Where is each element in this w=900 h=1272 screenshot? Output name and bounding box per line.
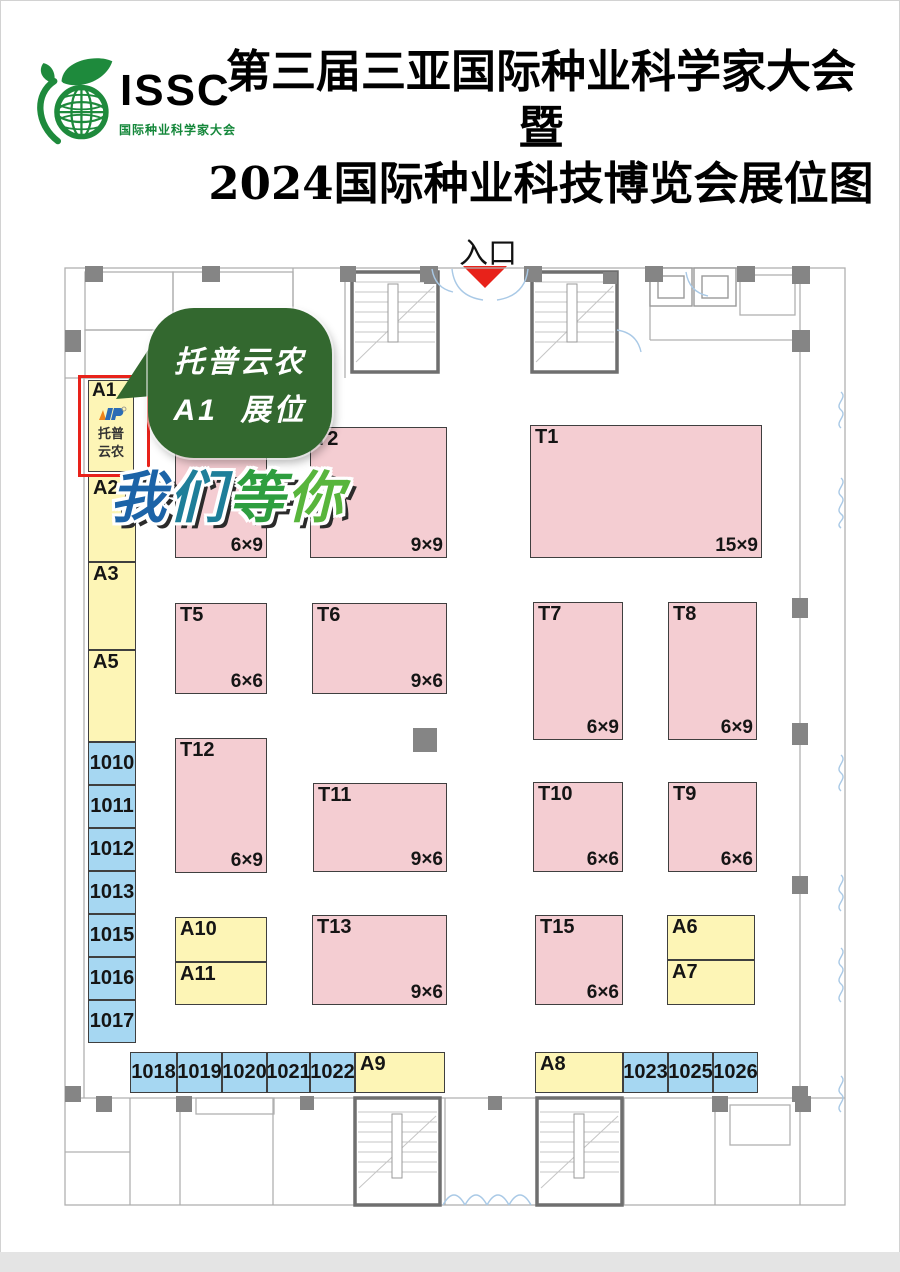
booth-T15: T156×6: [535, 915, 623, 1005]
booth-T13: T139×6: [312, 915, 447, 1005]
booth-T12: T126×9: [175, 738, 267, 873]
booth-A9: A9: [355, 1052, 445, 1093]
booth-id: T1: [535, 425, 558, 450]
booth-id: 1013: [90, 881, 135, 904]
booth-id: 1018: [131, 1061, 176, 1084]
booth-1013: 1013: [88, 871, 136, 914]
booth-1016: 1016: [88, 957, 136, 1000]
booth-size: 6×6: [721, 849, 753, 871]
booth-1015: 1015: [88, 914, 136, 957]
booth-size: 6×9: [231, 535, 263, 557]
welcome-banner: 我们等你: [110, 466, 346, 530]
booth-T6: T69×6: [312, 603, 447, 694]
booth-1023: 1023: [623, 1052, 668, 1093]
booth-A11: A11: [175, 962, 267, 1005]
booth-1022: 1022: [310, 1052, 355, 1093]
title-line2: 2024国际种业科技博览会展位图: [205, 156, 877, 212]
booth-id: T11: [318, 783, 351, 808]
banner-char: 们: [169, 466, 225, 530]
booth-id: T7: [538, 602, 561, 627]
booth-id: 1019: [177, 1061, 222, 1084]
booth-id: 1023: [623, 1061, 668, 1084]
booth-T11: T119×6: [313, 783, 447, 872]
booth-id: 1025: [668, 1061, 713, 1084]
booth-1017: 1017: [88, 1000, 136, 1043]
booth-id: 1016: [90, 967, 135, 990]
booth-T10: T106×6: [533, 782, 623, 872]
booth-id: 1022: [310, 1061, 355, 1084]
banner-char: 你: [287, 466, 343, 530]
booth-id: T9: [673, 782, 696, 807]
booth-size: 9×9: [411, 535, 443, 557]
booth-T9: T96×6: [668, 782, 757, 872]
booth-A8: A8: [535, 1052, 623, 1093]
booth-size: 6×6: [587, 982, 619, 1004]
booth-size: 15×9: [715, 535, 758, 557]
banner-char: 我: [110, 466, 166, 530]
booth-id: T6: [317, 603, 340, 628]
elevator-bank: [650, 268, 736, 306]
booth-T5: T56×6: [175, 603, 267, 694]
booth-id: 1012: [90, 838, 135, 861]
banner-char: 等: [228, 466, 284, 530]
booth-id: T8: [673, 602, 696, 627]
booth-id: A9: [360, 1052, 386, 1077]
booth-A10: A10: [175, 917, 267, 962]
booth-A6: A6: [667, 915, 755, 960]
booth-id: 1015: [90, 924, 135, 947]
booth-id: T10: [538, 782, 572, 807]
booth-id: 1017: [90, 1010, 135, 1033]
booth-1025: 1025: [668, 1052, 713, 1093]
callout-bubble: 托普云农 A1 展位: [148, 308, 332, 458]
booth-id: 1026: [713, 1061, 758, 1084]
booth-size: 9×6: [411, 849, 443, 871]
callout-line2: A1 展位: [173, 385, 306, 429]
a1-highlight-frame: [78, 375, 150, 477]
booth-A7: A7: [667, 960, 755, 1005]
booth-id: 1021: [266, 1061, 311, 1084]
booth-T7: T76×9: [533, 602, 623, 740]
booth-size: 9×6: [411, 671, 443, 693]
booth-size: 9×6: [411, 982, 443, 1004]
booth-id: 1020: [222, 1061, 267, 1084]
booth-1018: 1018: [130, 1052, 177, 1093]
stairwell-bottom-left: [355, 1098, 440, 1205]
poster-page: ISSC 国际种业科学家大会 第三届三亚国际种业科学家大会暨 2024国际种业科…: [0, 0, 900, 1272]
booth-1010: 1010: [88, 742, 136, 785]
booth-id: A3: [93, 562, 119, 587]
booth-id: T5: [180, 603, 203, 628]
booth-id: A8: [540, 1052, 566, 1077]
booth-id: A7: [672, 960, 698, 985]
title-line1: 第三届三亚国际种业科学家大会暨: [205, 44, 877, 156]
booth-1019: 1019: [177, 1052, 222, 1093]
booth-1021: 1021: [267, 1052, 310, 1093]
booth-size: 6×9: [587, 717, 619, 739]
booth-size: 6×9: [721, 717, 753, 739]
booth-id: T12: [180, 738, 214, 763]
booth-id: A10: [180, 917, 217, 942]
booth-id: 1010: [90, 752, 135, 775]
booth-A5: A5: [88, 650, 136, 742]
booth-T1: T115×9: [530, 425, 762, 558]
booth-id: A5: [93, 650, 119, 675]
booth-id: T15: [540, 915, 574, 940]
booth-size: 6×6: [587, 849, 619, 871]
booth-id: A6: [672, 915, 698, 940]
booth-id: 1011: [90, 795, 133, 818]
bottom-edge-strip: [0, 1252, 900, 1272]
booth-1011: 1011: [88, 785, 136, 828]
booth-id: T13: [317, 915, 351, 940]
stairwell-top-right: [532, 272, 617, 372]
booth-1026: 1026: [713, 1052, 758, 1093]
entrance-arrow-icon: [463, 266, 507, 288]
booth-id: A11: [180, 962, 216, 987]
booth-size: 6×9: [231, 850, 263, 872]
callout-line1: 托普云农: [174, 337, 306, 381]
stairwell-bottom-right: [537, 1098, 622, 1205]
booth-A3: A3: [88, 562, 136, 650]
booth-1012: 1012: [88, 828, 136, 871]
issc-logo-icon: [30, 54, 122, 157]
booth-size: 6×6: [231, 671, 263, 693]
page-title: 第三届三亚国际种业科学家大会暨 2024国际种业科技博览会展位图: [205, 44, 877, 212]
stairwell-top-left: [352, 272, 438, 372]
booth-1020: 1020: [222, 1052, 267, 1093]
booth-T8: T86×9: [668, 602, 757, 740]
